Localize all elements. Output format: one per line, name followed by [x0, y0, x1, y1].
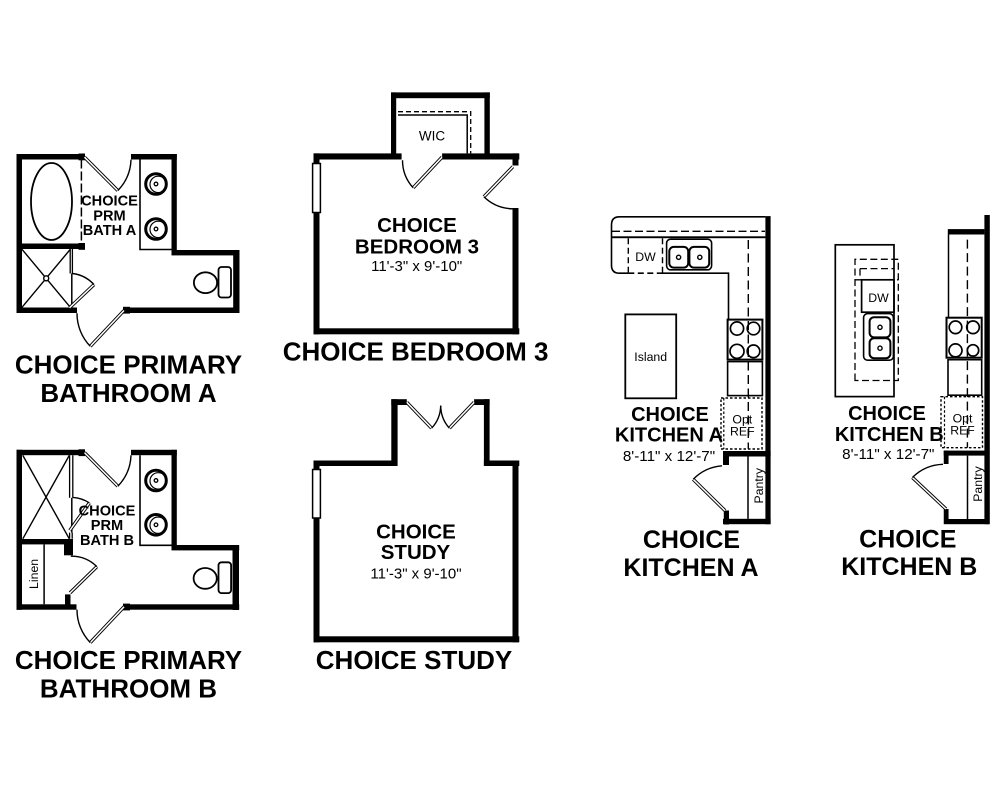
svg-text:8'-11" x 12'-7": 8'-11" x 12'-7" [842, 446, 934, 463]
svg-text:CHOICE BEDROOM 3: CHOICE BEDROOM 3 [283, 337, 549, 367]
svg-text:CHOICE PRIMARY: CHOICE PRIMARY [15, 350, 242, 380]
svg-text:CHOICE STUDY: CHOICE STUDY [316, 645, 512, 675]
svg-text:BEDROOM 3: BEDROOM 3 [355, 236, 479, 259]
svg-text:KITCHEN B: KITCHEN B [835, 424, 944, 446]
svg-text:BATH A: BATH A [83, 223, 137, 239]
svg-text:Island: Island [634, 350, 667, 364]
svg-text:11'-3" x 9'-10": 11'-3" x 9'-10" [370, 565, 461, 582]
svg-text:DW: DW [635, 250, 656, 264]
svg-text:WIC: WIC [419, 129, 445, 144]
svg-text:Linen: Linen [27, 559, 41, 589]
svg-text:CHOICE: CHOICE [377, 214, 457, 237]
svg-text:KITCHEN A: KITCHEN A [615, 425, 723, 447]
svg-text:CHOICE PRIMARY: CHOICE PRIMARY [15, 645, 242, 675]
svg-text:KITCHEN A: KITCHEN A [623, 554, 758, 582]
svg-text:BATHROOM A: BATHROOM A [40, 378, 216, 408]
svg-text:CHOICE: CHOICE [848, 403, 926, 425]
svg-text:CHOICE: CHOICE [81, 194, 138, 210]
svg-text:CHOICE: CHOICE [859, 526, 956, 554]
svg-text:PRM: PRM [91, 518, 123, 534]
svg-text:11'-3" x 9'-10": 11'-3" x 9'-10" [371, 258, 462, 275]
svg-text:BATH B: BATH B [80, 533, 134, 549]
svg-text:CHOICE: CHOICE [376, 521, 456, 544]
svg-text:DW: DW [868, 291, 889, 305]
svg-text:STUDY: STUDY [381, 541, 451, 564]
svg-text:BATHROOM B: BATHROOM B [40, 674, 217, 704]
svg-text:CHOICE: CHOICE [643, 526, 740, 554]
svg-text:REF: REF [730, 424, 755, 438]
svg-text:REF: REF [950, 423, 975, 437]
svg-text:CHOICE: CHOICE [631, 404, 709, 426]
svg-text:Pantry: Pantry [752, 467, 766, 503]
svg-text:Pantry: Pantry [971, 465, 985, 501]
svg-text:PRM: PRM [93, 208, 125, 224]
svg-text:KITCHEN B: KITCHEN B [841, 553, 977, 581]
svg-text:8'-11" x 12'-7": 8'-11" x 12'-7" [623, 448, 715, 465]
